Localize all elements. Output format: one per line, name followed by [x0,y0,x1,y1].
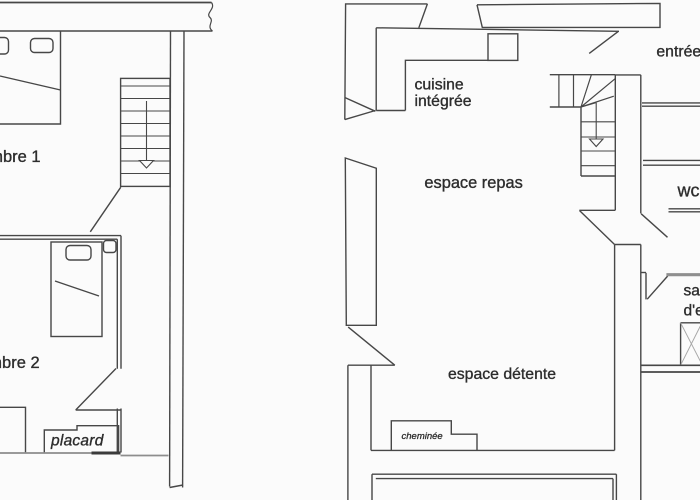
svg-text:d'e: d'e [684,303,700,320]
svg-text:chambre 2: chambre 2 [0,354,40,372]
svg-text:espace repas: espace repas [424,174,522,192]
svg-text:placard: placard [50,433,105,450]
svg-text:wc: wc [677,181,700,201]
svg-text:espace détente: espace détente [448,366,556,383]
svg-text:chambre 1: chambre 1 [0,148,41,166]
svg-text:cuisine: cuisine [415,77,464,94]
svg-text:entrée: entrée [656,43,700,60]
svg-text:intégrée: intégrée [415,93,472,110]
svg-text:sa: sa [684,283,700,300]
svg-text:cheminée: cheminée [402,431,443,442]
